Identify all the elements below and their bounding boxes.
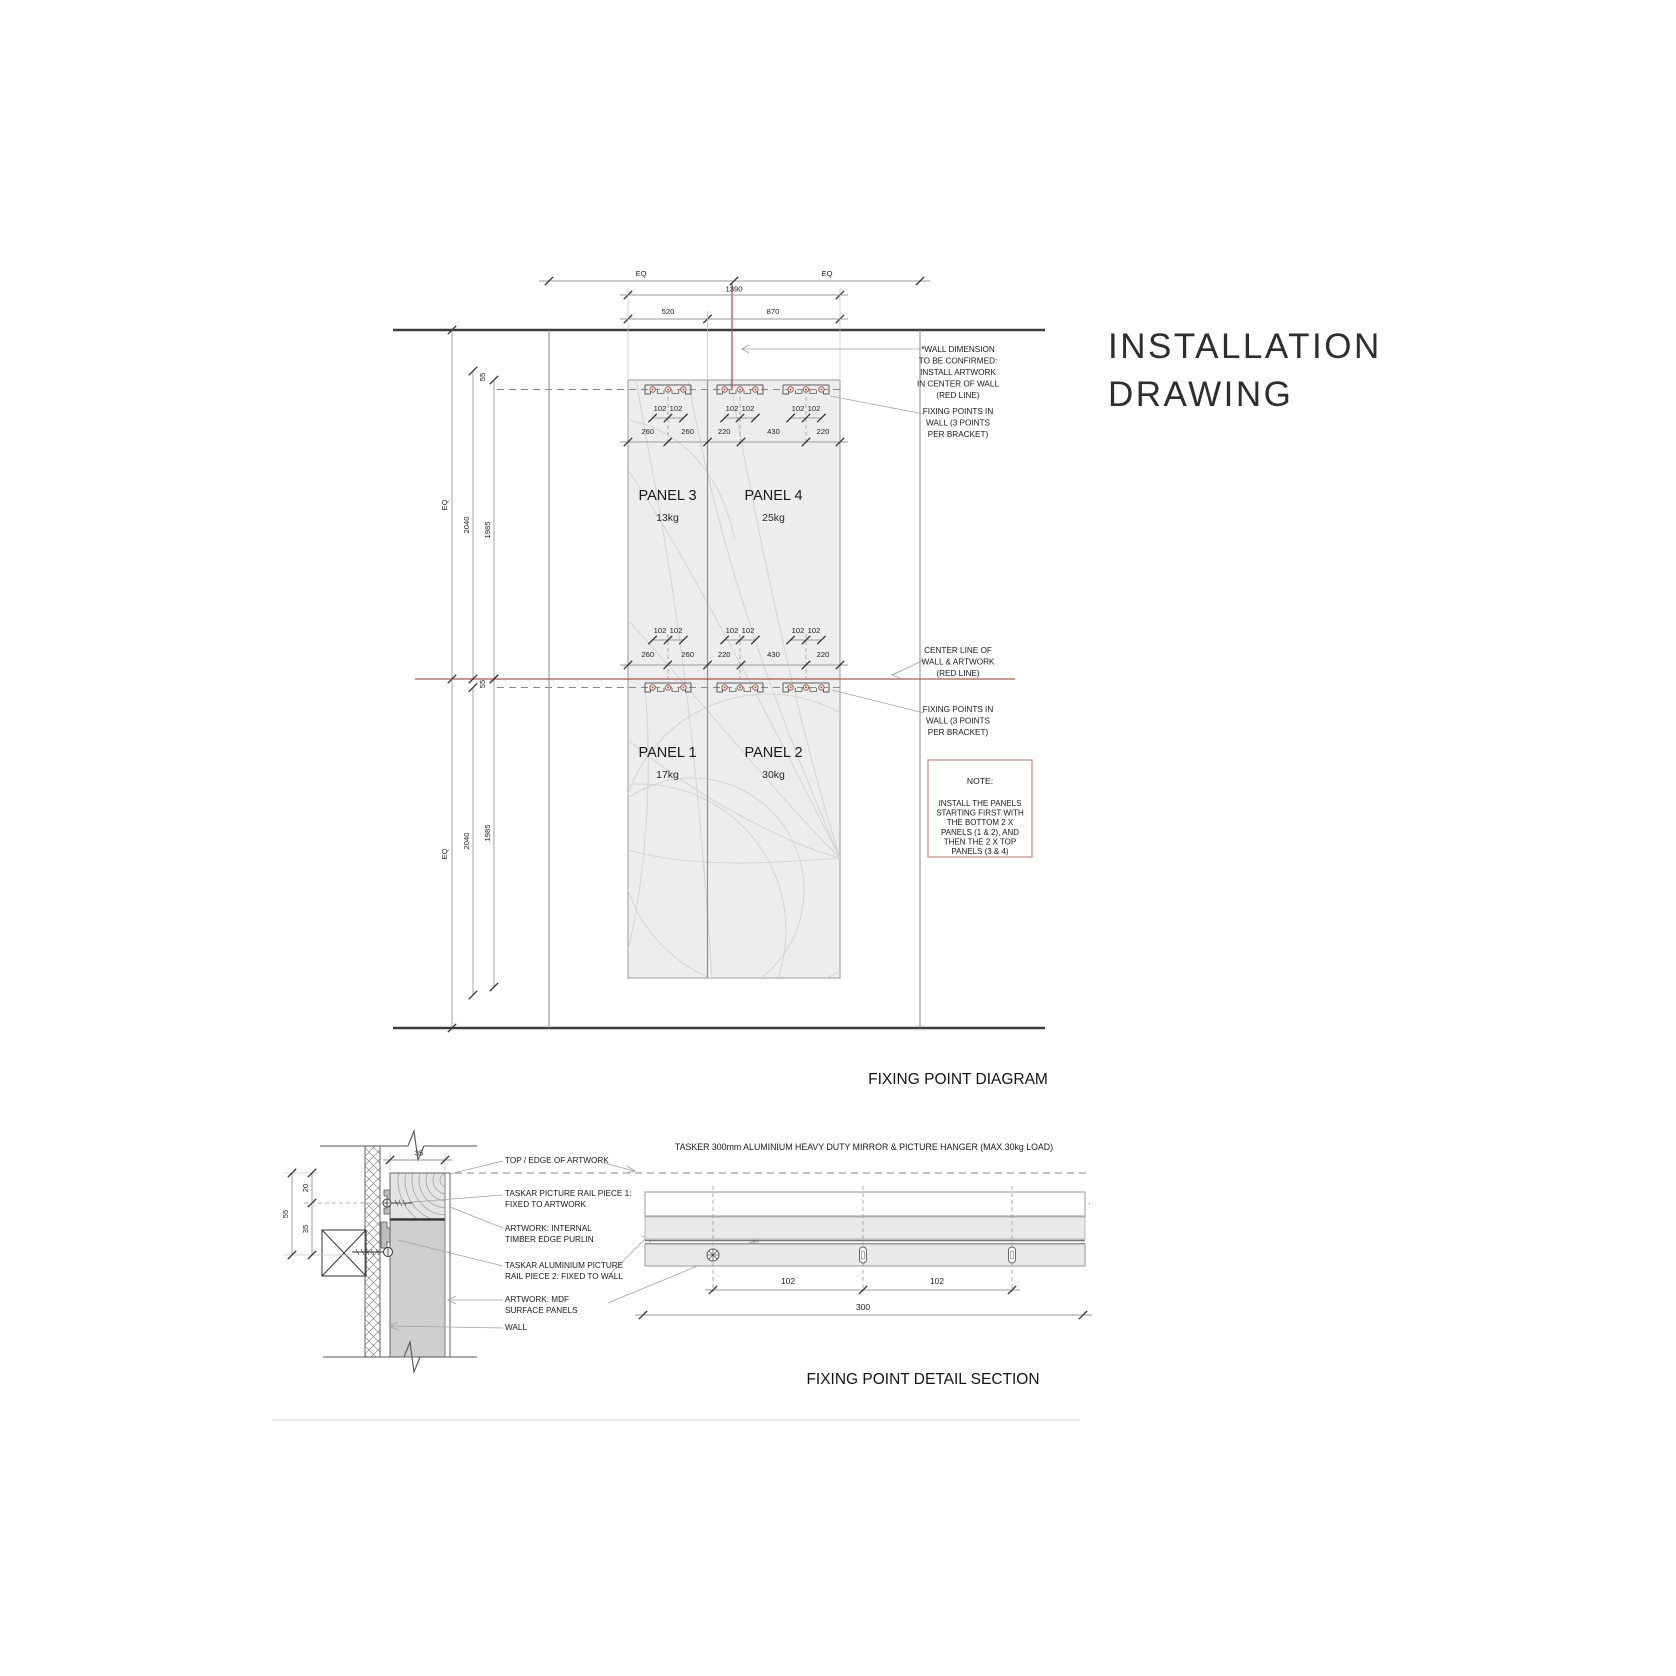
annotation-fixing-points-top: FIXING POINTS IN WALL (3 POINTS PER BRAC… (830, 396, 993, 439)
svg-text:FIXING POINTS IN: FIXING POINTS IN (923, 705, 994, 714)
svg-text:ARTWORK: INTERNAL: ARTWORK: INTERNAL (505, 1224, 592, 1233)
dim-35: 35 (301, 1225, 310, 1233)
svg-text:TASKAR PICTURE RAIL PIECE 1:: TASKAR PICTURE RAIL PIECE 1: (505, 1189, 631, 1198)
dim-260: 260 (681, 427, 694, 436)
svg-text:TO BE CONFIRMED:: TO BE CONFIRMED: (919, 357, 998, 366)
panel4-weight: 25kg (762, 512, 785, 524)
dim-220: 220 (817, 427, 830, 436)
label-wall: WALL (505, 1323, 527, 1332)
dim-430: 430 (767, 427, 780, 436)
panel2-label: PANEL 2 (744, 745, 802, 761)
dim-1985-bottom: 1985 (483, 825, 492, 842)
svg-text:TIMBER EDGE PURLIN: TIMBER EDGE PURLIN (505, 1235, 594, 1244)
svg-text:PER BRACKET): PER BRACKET) (928, 430, 989, 439)
dim-102-rail: 102 (781, 1276, 795, 1286)
svg-text:RAIL PIECE 2: FIXED TO WALL: RAIL PIECE 2: FIXED TO WALL (505, 1272, 623, 1281)
svg-text:FIXING POINTS IN: FIXING POINTS IN (923, 407, 994, 416)
dim-102: 102 (670, 404, 683, 413)
dim-55-top: 55 (478, 373, 487, 381)
artwork-edge-elevation (645, 1217, 1085, 1239)
dim-102: 102 (726, 404, 739, 413)
dim-102-rail: 102 (930, 1276, 944, 1286)
dim-eq-top: EQ (440, 499, 449, 510)
top-dimensions: EQ EQ 1390 520 870 (539, 269, 930, 378)
note-box: NOTE: INSTALL THE PANELS STARTING FIRST … (928, 760, 1032, 857)
panel4-label: PANEL 4 (744, 488, 802, 504)
dim-430: 430 (767, 650, 780, 659)
svg-text:STARTING FIRST WITH: STARTING FIRST WITH (936, 809, 1024, 818)
dim-55-bottom: 55 (478, 680, 487, 688)
page-title-line1: INSTALLATION (1108, 327, 1382, 366)
dim-260: 260 (641, 650, 654, 659)
wall-plug-blocking-icon (322, 1230, 366, 1276)
svg-text:THEN THE 2 X TOP: THEN THE 2 X TOP (944, 837, 1016, 846)
dim-220: 220 (718, 427, 731, 436)
side-dimensions-bottom: EQ 2040 1985 55 (440, 675, 498, 1032)
svg-text:INSTALL ARTWORK: INSTALL ARTWORK (920, 368, 996, 377)
annotation-center-line: CENTER LINE OF WALL & ARTWORK (RED LINE) (892, 646, 995, 678)
note-title: NOTE: (967, 776, 993, 786)
svg-text:TASKAR ALUMINIUM PICTURE: TASKAR ALUMINIUM PICTURE (505, 1261, 624, 1270)
dim-panel-left-width: 520 (662, 307, 675, 316)
svg-text:SURFACE PANELS: SURFACE PANELS (505, 1306, 578, 1315)
dim-1985-top: 1985 (483, 522, 492, 539)
svg-text:INSTALL THE PANELS: INSTALL THE PANELS (939, 799, 1022, 808)
dim-220: 220 (817, 650, 830, 659)
rail-piece1-elevation (645, 1192, 1085, 1216)
svg-text:CENTER LINE OF: CENTER LINE OF (924, 646, 992, 655)
annotation-fixing-points-bottom: FIXING POINTS IN WALL (3 POINTS PER BRAC… (832, 690, 993, 737)
sheet-title: INSTALLATION DRAWING (1108, 327, 1382, 414)
fixing-point-detail-section-title: FIXING POINT DETAIL SECTION (806, 1371, 1039, 1388)
panel3-label: PANEL 3 (638, 488, 696, 504)
rail-elevation: 102 102 300 (635, 1186, 1092, 1319)
dim-102: 102 (792, 626, 805, 635)
dim-102: 102 (670, 626, 683, 635)
fixing-point-detail-section: 35 55 20 35 TOP / EDGE OF ARTWORK TASKAR… (272, 1131, 1092, 1420)
fixing-point-diagram: EQ EQ 1390 520 870 EQ 2040 1985 55 (393, 269, 1048, 1088)
dim-102: 102 (808, 626, 821, 635)
dim-panel-right-width: 870 (767, 307, 780, 316)
installation-drawing-page: INSTALLATION DRAWING (0, 0, 1676, 1676)
drawing-sheet: INSTALLATION DRAWING (0, 0, 1676, 1676)
dim-2040-bottom: 2040 (462, 833, 471, 850)
dim-35-thickness: 35 (415, 1149, 423, 1158)
panel1-label: PANEL 1 (638, 745, 696, 761)
dim-102: 102 (792, 404, 805, 413)
svg-text:PANELS (3 & 4): PANELS (3 & 4) (951, 847, 1009, 856)
svg-text:WALL & ARTWORK: WALL & ARTWORK (922, 658, 995, 667)
dim-eq-right: EQ (822, 269, 833, 278)
svg-text:PER BRACKET): PER BRACKET) (928, 728, 989, 737)
svg-text:*WALL DIMENSION: *WALL DIMENSION (921, 345, 995, 354)
dim-220: 220 (718, 650, 731, 659)
svg-text:(RED LINE): (RED LINE) (936, 669, 979, 678)
artwork-section (323, 1131, 496, 1372)
svg-text:IN CENTER OF WALL: IN CENTER OF WALL (917, 380, 999, 389)
svg-text:ARTWORK: MDF: ARTWORK: MDF (505, 1295, 569, 1304)
dim-260: 260 (641, 427, 654, 436)
dim-102: 102 (726, 626, 739, 635)
dim-102: 102 (808, 404, 821, 413)
svg-text:WALL (3 POINTS: WALL (3 POINTS (926, 717, 991, 726)
rail-piece2-section (381, 1222, 390, 1248)
dim-overall-width: 1390 (726, 285, 743, 294)
hanger-spec-text: TASKER 300mm ALUMINIUM HEAVY DUTY MIRROR… (675, 1142, 1053, 1152)
fixing-point-diagram-title: FIXING POINT DIAGRAM (868, 1071, 1048, 1088)
dim-102: 102 (654, 404, 667, 413)
svg-text:THE BOTTOM 2 X: THE BOTTOM 2 X (947, 818, 1014, 827)
dim-102: 102 (742, 626, 755, 635)
dim-2040-top: 2040 (462, 517, 471, 534)
panel2-weight: 30kg (762, 769, 785, 781)
dim-eq-bottom: EQ (440, 848, 449, 859)
svg-text:FIXED TO ARTWORK: FIXED TO ARTWORK (505, 1200, 587, 1209)
svg-text:PANELS (1 & 2), AND: PANELS (1 & 2), AND (941, 828, 1019, 837)
panel3-weight: 13kg (656, 512, 679, 524)
dim-55-overall: 55 (281, 1210, 290, 1218)
panel1-weight: 17kg (656, 769, 679, 781)
side-dimensions-top: EQ 2040 1985 55 (440, 326, 498, 683)
svg-text:(RED LINE): (RED LINE) (936, 391, 979, 400)
label-top-edge: TOP / EDGE OF ARTWORK (505, 1156, 609, 1165)
svg-text:WALL (3 POINTS: WALL (3 POINTS (926, 419, 991, 428)
dim-20: 20 (301, 1184, 310, 1192)
page-title-line2: DRAWING (1108, 375, 1293, 414)
dim-300-rail: 300 (856, 1302, 871, 1312)
dim-eq-left: EQ (636, 269, 647, 278)
dim-102: 102 (654, 626, 667, 635)
dim-260: 260 (681, 650, 694, 659)
dim-102: 102 (742, 404, 755, 413)
